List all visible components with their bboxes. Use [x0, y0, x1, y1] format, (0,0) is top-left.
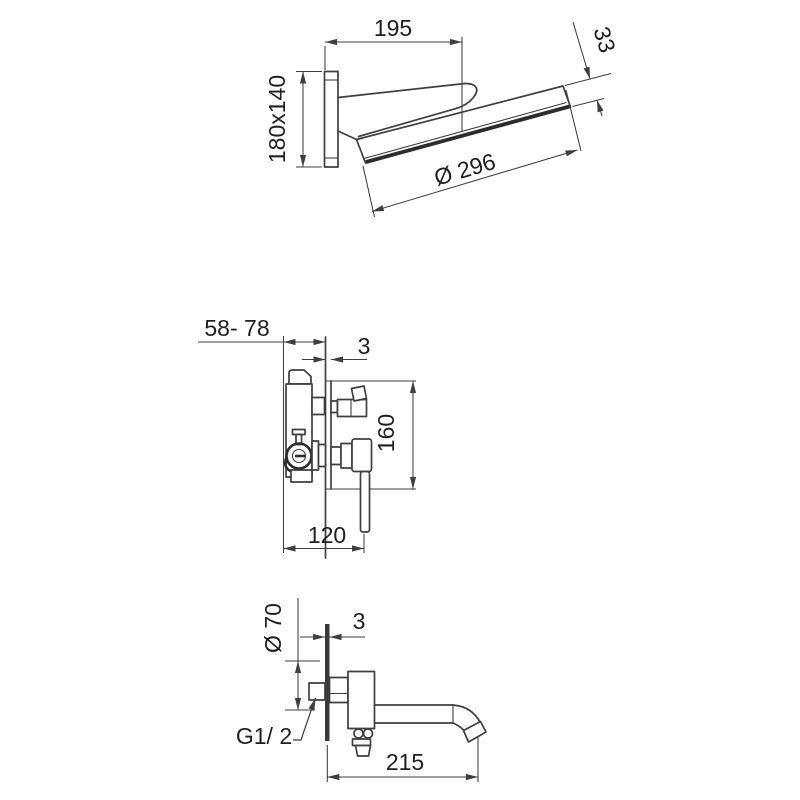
spec-sheet: 195 180x140 Ø 296 33: [0, 0, 800, 800]
diverter-body: [338, 400, 367, 417]
dim-label-wall-plate: 180x140: [264, 75, 290, 163]
dim-33: 33: [565, 22, 621, 116]
mixer-top-cap: [289, 370, 311, 384]
dim-label-escutcheon-diameter: Ø 70: [260, 603, 286, 653]
aerator-circle-left: [354, 729, 363, 738]
dim-label-projection: 195: [374, 15, 412, 41]
spout-view: Ø 70 3 G1/ 2 215: [236, 598, 486, 782]
aerator-tip: [356, 746, 371, 757]
thread-size-label: G1/ 2: [236, 723, 292, 749]
handle-adapter-small: [331, 447, 341, 465]
mixer-base-block: [291, 470, 312, 482]
technical-drawing: 195 180x140 Ø 296 33: [0, 0, 800, 800]
showerhead-view: 195 180x140 Ø 296 33: [264, 15, 621, 217]
diverter-connector: [331, 401, 338, 413]
showerhead-wall-plate: [325, 72, 339, 168]
dim-58-78: 58- 78: [198, 315, 326, 342]
spout-thread-nipple: [309, 683, 325, 700]
spout-wall-flange: [330, 678, 349, 703]
handle-body: [352, 439, 372, 472]
spout-outlet-tip: [464, 722, 487, 743]
dim-160: 160: [373, 381, 413, 489]
dim-3-mixer: 3: [302, 333, 370, 360]
aerator-circle-right: [364, 729, 373, 738]
callout-thread: G1/ 2: [236, 698, 316, 749]
stem-section-2: [319, 445, 326, 467]
dim-label-wall-offset: 3: [353, 608, 366, 634]
aerator-collar: [353, 739, 371, 746]
arrow-segment: [573, 22, 590, 79]
dim-label-edge-height: 33: [588, 24, 620, 56]
arrow-segment: [597, 100, 602, 116]
ext-line: [566, 90, 581, 151]
dim-215: 215: [327, 737, 478, 782]
dim-120: 120: [284, 522, 365, 553]
shower-arm-top-line: [338, 84, 465, 98]
dim-label-spout-length: 215: [386, 749, 424, 775]
mixer-upper-outlet: [312, 398, 325, 415]
mixer-view: 58- 78 3 160 120: [198, 315, 416, 558]
ext-line: [565, 74, 611, 86]
dim-195: 195: [325, 15, 462, 131]
shower-arm-bottom-line: [338, 131, 357, 140]
ext-line: [363, 166, 375, 217]
handle-lever: [361, 472, 370, 533]
dim-label-install-depth: 58- 78: [204, 315, 269, 341]
spout-end-outer-curve: [453, 705, 480, 722]
dim-180x140: 180x140: [264, 72, 322, 168]
dim-label-wall-offset: 3: [358, 333, 371, 359]
dim-3-spout: 3: [300, 608, 365, 637]
ext-line: [573, 99, 605, 107]
stem-section-1: [312, 441, 319, 470]
dim-label-body-depth: 120: [308, 522, 346, 548]
dim-label-head-diameter: Ø 296: [431, 148, 498, 191]
diverter-knob: [352, 386, 367, 401]
spout-body: [348, 672, 375, 729]
dim-label-plate-height: 160: [373, 414, 399, 452]
head-fin-curve: [455, 83, 477, 108]
spout-end-inner-curve: [453, 723, 464, 730]
leader-line: [293, 698, 316, 740]
handle-adapter-large: [341, 444, 352, 469]
